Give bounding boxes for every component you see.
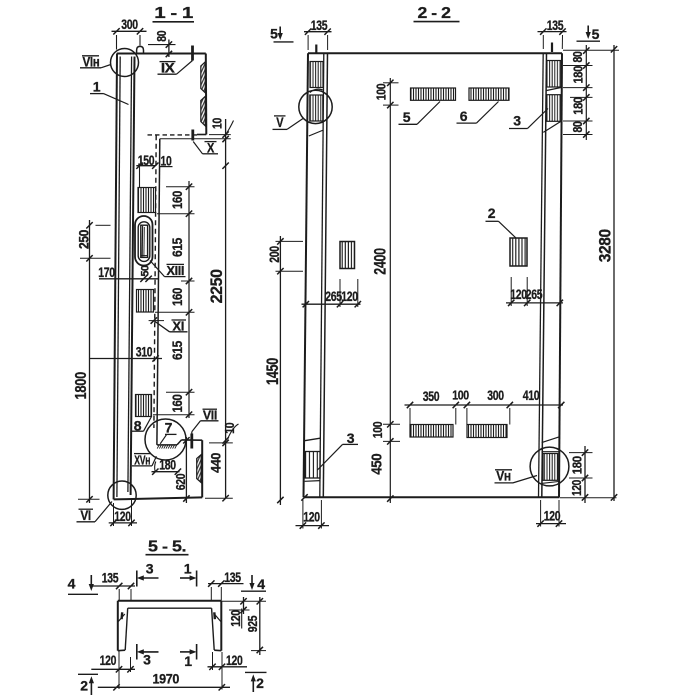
svg-text:3: 3	[146, 561, 154, 577]
svg-text:310: 310	[136, 345, 153, 360]
svg-text:10: 10	[210, 118, 225, 129]
svg-text:170: 170	[98, 265, 115, 280]
svg-text:180: 180	[571, 97, 586, 115]
svg-text:160: 160	[170, 395, 185, 413]
svg-text:180: 180	[570, 456, 585, 474]
svg-text:80: 80	[154, 31, 169, 42]
svg-text:615: 615	[170, 237, 185, 257]
svg-text:120: 120	[114, 509, 131, 524]
svg-text:VI: VI	[80, 508, 91, 523]
svg-text:925: 925	[245, 616, 260, 633]
svg-text:IX: IX	[161, 61, 175, 76]
svg-text:120: 120	[226, 653, 243, 668]
svg-text:120: 120	[341, 289, 358, 304]
svg-text:4: 4	[68, 576, 76, 592]
svg-text:XVн: XVн	[134, 452, 150, 467]
svg-text:120: 120	[229, 610, 243, 627]
svg-text:120: 120	[544, 509, 561, 524]
svg-text:2400: 2400	[371, 248, 390, 275]
svg-text:5: 5	[403, 109, 411, 125]
svg-text:1: 1	[184, 653, 192, 669]
svg-text:120: 120	[569, 480, 584, 496]
svg-text:10: 10	[222, 423, 237, 434]
svg-text:1: 1	[184, 561, 192, 577]
svg-text:2: 2	[488, 205, 496, 221]
svg-text:80: 80	[571, 121, 585, 132]
svg-text:300: 300	[121, 17, 138, 32]
svg-text:300: 300	[487, 388, 504, 403]
svg-text:2: 2	[80, 678, 88, 694]
svg-text:3: 3	[143, 652, 151, 668]
svg-text:160: 160	[170, 288, 185, 306]
svg-text:180: 180	[571, 66, 586, 84]
svg-text:135: 135	[102, 571, 119, 586]
svg-text:120: 120	[510, 287, 527, 302]
svg-text:50: 50	[140, 265, 152, 276]
svg-text:350: 350	[423, 389, 440, 404]
svg-text:135: 135	[224, 570, 241, 585]
svg-text:5 - 5.: 5 - 5.	[148, 539, 186, 556]
svg-text:1 - 1: 1 - 1	[154, 5, 194, 22]
svg-text:250: 250	[77, 230, 92, 249]
svg-text:6: 6	[460, 108, 468, 124]
svg-text:135: 135	[547, 18, 564, 33]
svg-text:1: 1	[93, 79, 101, 95]
svg-text:7: 7	[165, 419, 173, 435]
svg-text:3280: 3280	[595, 229, 614, 262]
svg-text:135: 135	[311, 18, 328, 33]
svg-text:2: 2	[256, 675, 264, 691]
svg-text:V: V	[276, 115, 283, 130]
svg-text:100: 100	[375, 83, 389, 100]
svg-text:5: 5	[270, 26, 278, 42]
svg-text:2 - 2: 2 - 2	[418, 5, 451, 22]
svg-text:80: 80	[571, 51, 585, 62]
svg-text:100: 100	[452, 389, 469, 403]
svg-text:200: 200	[267, 246, 282, 263]
svg-text:2250: 2250	[207, 269, 226, 303]
svg-text:180: 180	[159, 458, 176, 473]
svg-text:615: 615	[170, 340, 185, 360]
svg-text:1970: 1970	[153, 671, 180, 687]
svg-text:1450: 1450	[264, 358, 282, 385]
svg-text:Vн: Vн	[496, 469, 511, 484]
svg-text:4: 4	[257, 576, 265, 592]
svg-text:X: X	[207, 140, 214, 155]
svg-text:1800: 1800	[73, 372, 90, 400]
svg-text:160: 160	[170, 191, 185, 209]
svg-text:120: 120	[100, 653, 117, 668]
svg-text:440: 440	[209, 453, 224, 473]
svg-text:3: 3	[513, 113, 521, 129]
svg-text:620: 620	[173, 474, 188, 491]
svg-text:265: 265	[526, 287, 543, 302]
svg-text:450: 450	[369, 453, 385, 474]
svg-text:100: 100	[371, 421, 385, 438]
svg-text:410: 410	[523, 388, 540, 403]
svg-text:5: 5	[592, 26, 600, 42]
